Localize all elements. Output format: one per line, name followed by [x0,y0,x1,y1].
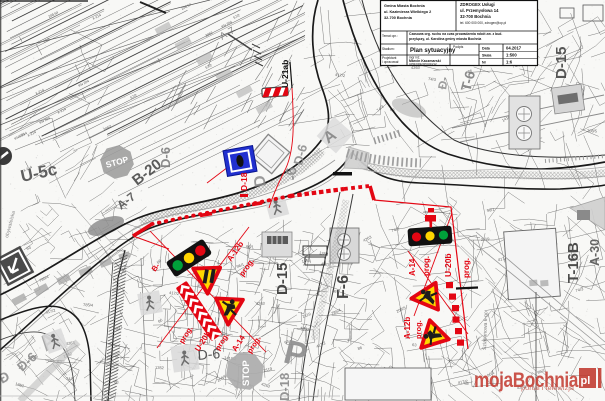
svg-text:przyłączy, ul. Karolina gminy: przyłączy, ul. Karolina gminy miasta Boc… [409,37,481,41]
svg-text:A-12b: A-12b [403,317,412,339]
svg-text:STOP: STOP [241,360,252,386]
svg-text:D-15: D-15 [553,46,570,79]
svg-text:U-20b: U-20b [443,253,453,277]
svg-text:1:6: 1:6 [506,60,513,65]
svg-text:Temat opr.:: Temat opr.: [382,34,398,38]
svg-text:1352: 1352 [155,365,165,370]
svg-text:ul. Przemysłowa 14: ul. Przemysłowa 14 [460,8,499,13]
svg-text:32-700 Bochnia: 32-700 Bochnia [384,16,413,20]
svg-text:Podpis: Podpis [453,45,464,49]
svg-text:Data: Data [482,47,491,51]
svg-text:T-16B: T-16B [565,242,582,283]
svg-text:Nr: Nr [482,61,487,65]
svg-text:ZDROGEX Usługi: ZDROGEX Usługi [460,2,495,7]
svg-text:pl: pl [581,375,591,387]
svg-text:U-21ab: U-21ab [280,60,290,88]
svg-text:F-6: F-6 [335,275,352,299]
svg-text:D-15: D-15 [274,262,291,295]
svg-text:ul. Kazimierza Wielkiego 2: ul. Kazimierza Wielkiego 2 [384,10,431,14]
svg-text:prog.: prog. [414,320,423,339]
svg-text:portal i telewizja: portal i telewizja [521,385,574,392]
svg-text:Đ-: Đ- [435,76,451,91]
svg-text:96/1: 96/1 [246,244,255,249]
svg-text:tel. 600 000 000, zdrogex@op.p: tel. 600 000 000, zdrogex@op.pl [460,21,506,25]
svg-text:D-18: D-18 [277,373,292,401]
svg-text:Czasowa org. ruchu na czas pro: Czasowa org. ruchu na czas prowadzenia r… [409,32,502,36]
svg-text:/ opracował: / opracował [382,60,399,64]
svg-text:D-6: D-6 [158,147,173,168]
svg-text:Skala: Skala [482,54,492,58]
svg-text:785/4: 785/4 [83,302,94,308]
svg-text:A-14: A-14 [408,258,417,276]
svg-text:208/5: 208/5 [587,128,598,134]
svg-text:Stadium:: Stadium: [382,47,395,51]
svg-text:32-700 Bochnia: 32-700 Bochnia [460,14,491,19]
svg-text:4263: 4263 [256,301,266,306]
svg-text:04.2017: 04.2017 [506,46,522,51]
svg-text:prog.: prog. [462,258,471,278]
svg-text:UPR/0932/POOD/12: UPR/0932/POOD/12 [409,62,437,66]
svg-text:D-18: D-18 [239,172,249,191]
svg-text:Plan sytuacyjny: Plan sytuacyjny [410,48,456,54]
svg-text:Gmina Miasta Bochnia: Gmina Miasta Bochnia [384,4,426,8]
svg-text:prog.: prog. [422,256,431,276]
svg-text:A-30: A-30 [588,239,602,266]
svg-text:1:500: 1:500 [506,53,517,58]
